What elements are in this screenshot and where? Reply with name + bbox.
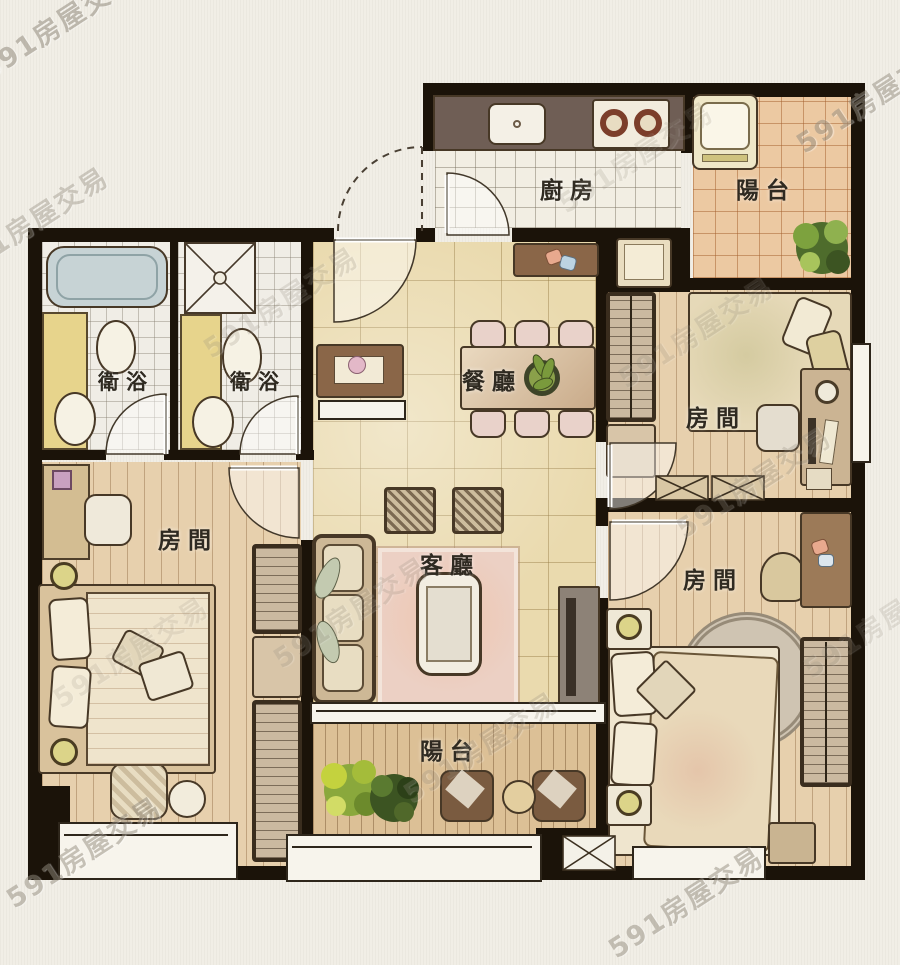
bedside-lamp	[50, 562, 78, 590]
stool-bottom-right	[768, 822, 816, 864]
side-table-round	[168, 780, 206, 818]
room-label-balcony-top: 陽台	[736, 171, 796, 205]
desk-deco-blue	[818, 554, 834, 567]
window-bay-left	[58, 822, 238, 880]
wall-living-east-upper	[596, 498, 608, 526]
desk-monitor	[808, 418, 816, 464]
room-label-bedroom-top-right: 房間	[686, 399, 746, 433]
wall-bath-south-2	[164, 450, 240, 460]
window-sill-bottom-right	[632, 846, 766, 880]
stove-burner-left	[600, 109, 628, 137]
shower-stall	[184, 242, 256, 314]
wall-bath-divider	[170, 238, 178, 452]
window-right-top	[851, 343, 871, 463]
dining-chair	[470, 320, 506, 348]
sink-right	[192, 396, 234, 448]
wall-left	[28, 228, 42, 880]
floor-cushion	[452, 487, 504, 534]
room-label-bath-right: 衛浴	[230, 366, 286, 396]
room-label-living: 客廳	[420, 546, 480, 580]
washing-machine-panel	[702, 154, 748, 162]
desk-mouse	[806, 468, 832, 490]
tv-cabinet	[558, 586, 600, 708]
room-label-dining: 餐廳	[462, 362, 522, 396]
wall-bedrooms-divider	[596, 498, 865, 512]
refrigerator-inner	[624, 244, 664, 280]
coffee-table-shelf	[426, 586, 472, 662]
wall-upper-left	[28, 228, 334, 242]
washing-machine-lid	[700, 102, 750, 150]
wall-bath-east	[301, 238, 313, 456]
tv-screen	[566, 598, 576, 696]
chair-left-bedroom	[84, 494, 132, 546]
balcony-sill	[286, 834, 542, 882]
dining-chair	[514, 410, 550, 438]
nightstand-lamp	[616, 790, 642, 816]
wardrobe-bottom-right-rod	[825, 642, 827, 782]
wall-entry-post	[416, 228, 435, 242]
room-label-balcony-bottom: 陽台	[420, 732, 480, 766]
balcony-slider	[310, 702, 606, 724]
kitchen-faucet	[513, 120, 521, 128]
dining-table-plant	[524, 360, 560, 396]
watermark-text: 591房屋交易	[0, 0, 142, 88]
wardrobe-left-mid	[252, 636, 302, 698]
wardrobe-left-top	[252, 544, 302, 634]
entrance-door-dashed	[338, 147, 422, 231]
room-label-kitchen: 廚房	[540, 171, 600, 205]
chair-top-right	[756, 404, 800, 452]
balcony-slider-rail	[316, 710, 596, 712]
sink-left	[54, 392, 96, 446]
floor-cushion	[384, 487, 436, 534]
wall-block-balcony-right	[536, 828, 602, 880]
bathtub-inner	[56, 254, 158, 300]
stool-purple	[52, 470, 72, 490]
dining-chair	[514, 320, 550, 348]
desk-lamp-top-right	[815, 380, 839, 404]
room-label-bath-left: 衛浴	[98, 366, 154, 396]
entry-bench	[318, 400, 406, 420]
pillow	[48, 597, 92, 662]
dining-chair	[558, 320, 594, 348]
pillow	[48, 665, 92, 730]
balcony-sill-line	[292, 846, 532, 848]
dining-chair	[558, 410, 594, 438]
nightstand-lamp	[616, 614, 642, 640]
armchair-left	[110, 762, 168, 820]
wall-balcony-bedroom	[686, 278, 853, 290]
floor-plan: 廚房 陽台 衛浴 衛浴 餐廳 房間 房間 客廳 房間 陽台 591房屋交易 59…	[0, 0, 900, 965]
dining-chair	[470, 410, 506, 438]
wall-right	[851, 83, 865, 880]
balcony-table	[502, 780, 536, 814]
wall-bath-south-3	[296, 450, 314, 460]
stove-burner-right	[634, 109, 662, 137]
wall-bath-south-1	[28, 450, 106, 460]
window-bay-left-line	[64, 834, 228, 836]
room-label-bedroom-bottom-right: 房間	[683, 561, 743, 595]
entry-console-ball	[348, 356, 366, 374]
pillow	[610, 721, 658, 788]
wardrobe-top-right-rod	[630, 296, 632, 418]
room-label-bedroom-left: 房間	[158, 521, 218, 555]
bedside-lamp	[50, 738, 78, 766]
cabinet-top-right	[606, 424, 656, 478]
